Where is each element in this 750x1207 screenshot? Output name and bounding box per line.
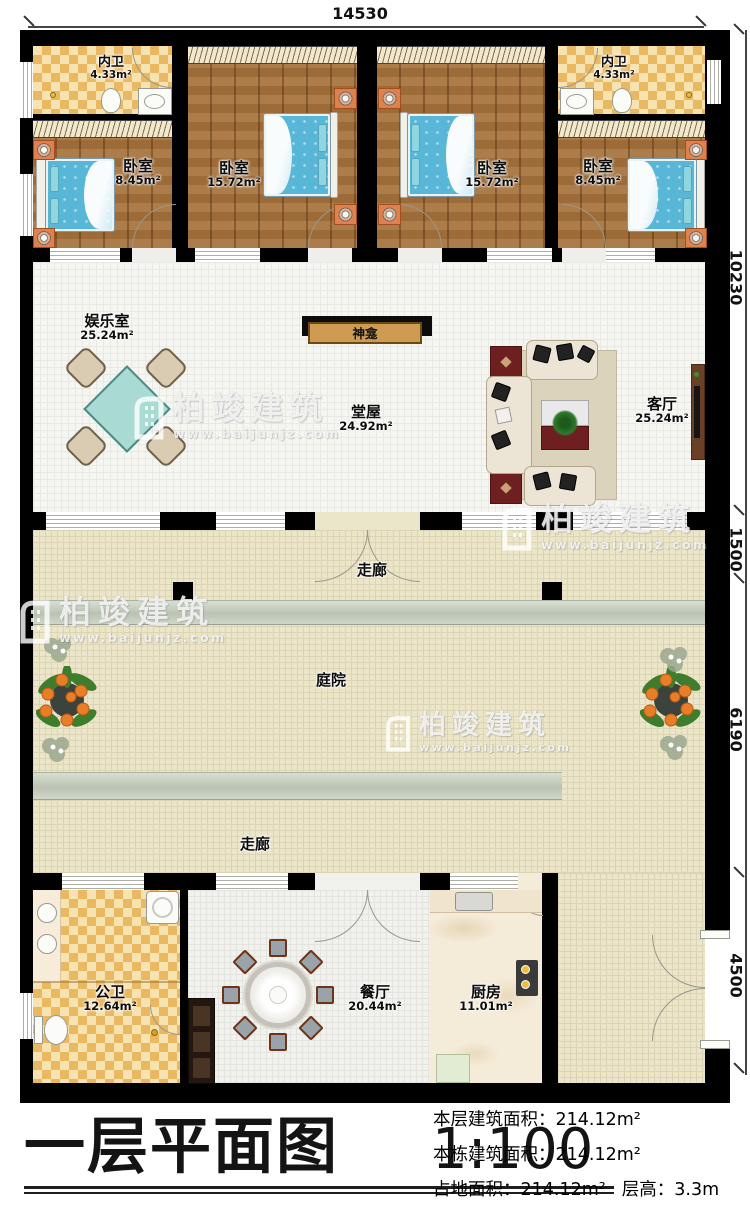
window: [216, 873, 288, 890]
burner: [521, 965, 530, 974]
dimension-tick: [733, 1062, 744, 1073]
dimension-top: 14530: [280, 4, 440, 23]
toilet-tank: [34, 1016, 43, 1044]
door-opening: [315, 873, 420, 890]
room-label-corridor-upper: 走廊: [357, 562, 387, 578]
sideboard-door: [193, 1032, 210, 1052]
burner: [521, 980, 530, 989]
sofa-pillow: [559, 473, 578, 492]
column: [542, 582, 562, 600]
watermark-site: www.baijunjz.com: [59, 630, 227, 645]
window: [195, 248, 260, 262]
watermark-logo: [384, 713, 412, 753]
shrub: [658, 644, 692, 676]
nightstand: [685, 140, 707, 160]
red-mat: [490, 346, 522, 378]
watermark: 柏竣建筑www.baijunjz.com: [132, 392, 341, 441]
shrine-label: 神龛: [352, 326, 377, 341]
sofa-pillow: [495, 407, 513, 425]
entry-door-panel: [700, 1040, 730, 1049]
watermark-logo: [18, 598, 52, 644]
cutting-board: [436, 1054, 470, 1083]
toilet: [44, 1015, 68, 1045]
pillow: [411, 158, 420, 186]
chair: [269, 939, 287, 957]
room-label-main-hall: 堂屋24.92m²: [339, 404, 392, 433]
dimension-tick: [733, 23, 744, 34]
washing-machine-drum: [152, 897, 173, 918]
pillow: [318, 124, 327, 152]
watermark: 柏竣建筑www.baijunjz.com: [18, 596, 227, 645]
room-label-living-room: 客厅25.24m²: [635, 396, 688, 425]
floor-drain: [50, 92, 56, 98]
sink: [566, 94, 587, 109]
room-label-bedroom-center-left: 卧室15.72m²: [207, 160, 260, 189]
tv: [694, 386, 700, 438]
dimension-line-top: [28, 26, 704, 28]
shrub: [40, 734, 74, 766]
window: [62, 873, 144, 890]
window: [487, 248, 552, 262]
nightstand: [33, 140, 55, 160]
nightstand: [334, 88, 357, 109]
dining-table: [245, 962, 311, 1028]
watermark-site: www.baijunjz.com: [419, 741, 571, 754]
sofa-pillow: [556, 343, 575, 362]
closet-left: [33, 120, 172, 138]
closet-right: [558, 120, 705, 138]
bed-headboard: [696, 158, 705, 232]
nightstand: [685, 228, 707, 248]
sink: [144, 94, 165, 109]
watermark-brand: 柏竣建筑: [419, 712, 571, 739]
door-opening: [315, 512, 420, 530]
window: [216, 512, 285, 530]
entry-opening: [705, 932, 730, 1044]
red-mat: [490, 472, 522, 504]
window: [20, 62, 33, 118]
room-label-public-bath: 公卫12.64m²: [83, 984, 136, 1013]
chair: [316, 986, 334, 1004]
dimension-tick: [733, 866, 744, 877]
door-opening: [562, 248, 606, 262]
watermark-text: 柏竣建筑www.baijunjz.com: [419, 712, 571, 754]
pillow: [411, 124, 420, 152]
chair: [269, 1033, 287, 1051]
pillow: [318, 158, 327, 186]
room-label-bedroom-center-right: 卧室15.72m²: [465, 160, 518, 189]
nightstand: [378, 88, 401, 109]
floor-drain: [686, 92, 692, 98]
door-knob: [151, 1029, 158, 1036]
window: [46, 512, 160, 530]
watermark: 柏竣建筑www.baijunjz.com: [500, 503, 709, 552]
door-opening: [398, 248, 442, 262]
dimension-tick: [733, 504, 744, 515]
pillow: [683, 198, 692, 224]
watermark-text: 柏竣建筑www.baijunjz.com: [173, 392, 341, 441]
window: [450, 873, 518, 890]
watermark-text: 柏竣建筑www.baijunjz.com: [59, 596, 227, 645]
room-label-bedroom-right: 卧室8.45m²: [575, 158, 620, 187]
chair: [222, 986, 240, 1004]
orange-tree: [36, 666, 98, 734]
kitchen-sink: [455, 892, 493, 911]
room-label-dining-room: 餐厅20.44m²: [348, 984, 401, 1013]
toilet: [101, 88, 121, 113]
window: [50, 248, 120, 262]
dimension-tick: [695, 15, 706, 26]
room-label-inner-bath-left: 内卫4.33m²: [90, 56, 131, 81]
watermark-logo: [132, 394, 166, 440]
closet-center-left: [188, 46, 357, 64]
room-label-recreation-room: 娱乐室25.24m²: [80, 313, 133, 342]
info-floor-area: 本层建筑面积：214.12m²: [433, 1106, 641, 1131]
watermark-site: www.baijunjz.com: [541, 537, 709, 552]
window: [20, 174, 33, 236]
pillow: [50, 198, 59, 224]
room-label-kitchen: 厨房11.01m²: [459, 984, 512, 1013]
room-label-courtyard: 庭院: [316, 672, 346, 688]
watermark: 柏竣建筑www.baijunjz.com: [384, 712, 571, 754]
door-opening: [308, 248, 352, 262]
plan-title: 一层平面图: [24, 1116, 339, 1177]
nightstand: [334, 204, 357, 225]
door-opening: [518, 873, 542, 890]
plant: [694, 372, 699, 377]
bed-headboard: [330, 112, 338, 198]
nightstand: [378, 204, 401, 225]
pillow: [50, 166, 59, 192]
blanket: [84, 161, 112, 229]
closet-center-right: [377, 46, 545, 64]
toilet: [612, 88, 632, 113]
floor-courtyard: [33, 530, 705, 873]
dimension-tick: [23, 15, 34, 26]
door-opening: [132, 248, 176, 262]
room-label-inner-bath-right: 内卫4.33m²: [593, 56, 634, 81]
bed-headboard: [400, 112, 408, 198]
bed-headboard: [36, 158, 46, 232]
watermark-brand: 柏竣建筑: [173, 392, 341, 424]
pillow: [683, 166, 692, 192]
sink: [37, 934, 57, 954]
watermark-brand: 柏竣建筑: [541, 503, 709, 535]
window: [707, 60, 721, 104]
nightstand: [33, 228, 55, 248]
room-label-corridor-lower: 走廊: [240, 836, 270, 852]
watermark-site: www.baijunjz.com: [173, 426, 341, 441]
sideboard-door: [193, 1006, 210, 1026]
sink: [37, 903, 57, 923]
shrub: [658, 732, 692, 764]
plant: [552, 410, 578, 436]
walkway-lower: [33, 772, 562, 800]
info-land-area-height: 占地面积：214.12m²层高：3.3m: [433, 1176, 719, 1201]
watermark-logo: [500, 505, 534, 551]
sideboard-door: [193, 1058, 210, 1078]
info-building-area: 本栋建筑面积：214.12m²: [433, 1141, 641, 1166]
window: [20, 993, 33, 1039]
shrine-shelf: 神龛: [308, 322, 422, 344]
room-label-bedroom-left: 卧室8.45m²: [115, 158, 160, 187]
watermark-brand: 柏竣建筑: [59, 596, 227, 628]
orange-tree: [640, 666, 702, 734]
watermark-text: 柏竣建筑www.baijunjz.com: [541, 503, 709, 552]
floor-plan-canvas: 14530 10230 1500 6190 4500: [0, 0, 750, 1207]
